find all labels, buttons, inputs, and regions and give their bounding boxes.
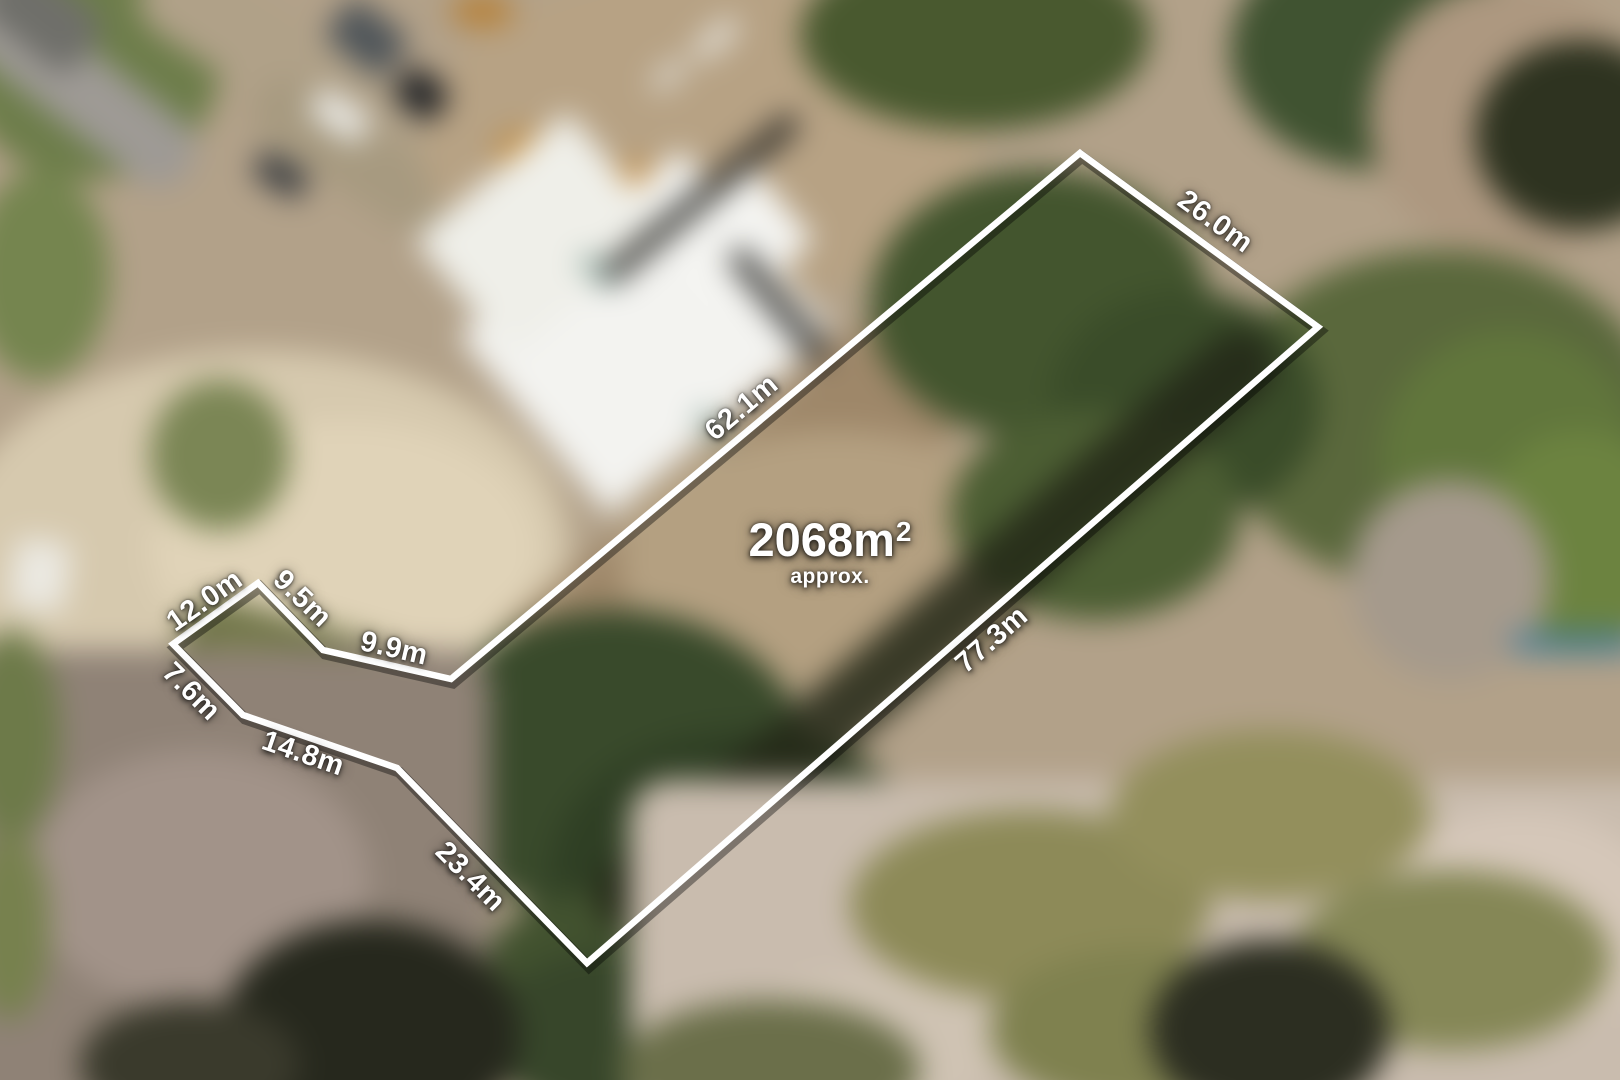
parcel-boundary xyxy=(173,153,1318,963)
parcel-boundary-shadow xyxy=(175,157,1320,967)
aerial-property-photo: 12.0m 9.5m 9.9m 7.6m 14.8m 23.4m 62.1m 2… xyxy=(0,0,1620,1080)
area-number: 2068m xyxy=(749,513,895,566)
area-qualifier: approx. xyxy=(749,565,912,588)
area-label: 2068m2 approx. xyxy=(749,516,912,588)
area-superscript: 2 xyxy=(896,516,912,547)
area-value: 2068m2 xyxy=(749,516,912,563)
